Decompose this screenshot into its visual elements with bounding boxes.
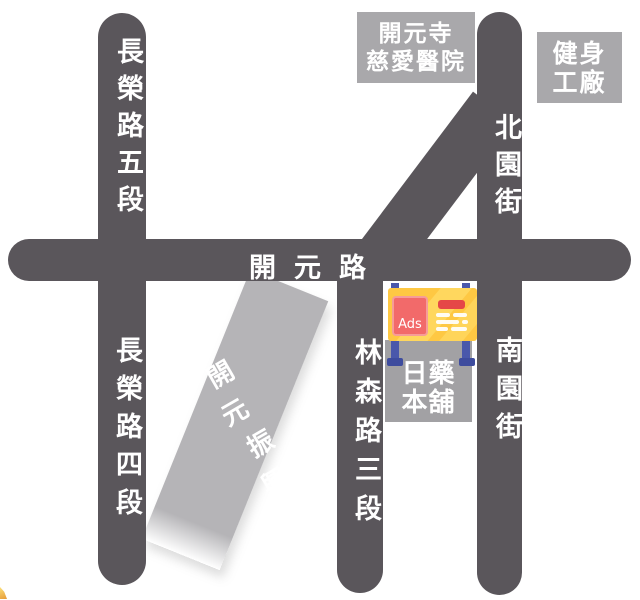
road-label-kaiyuan: 開元路 [249,246,384,285]
billboard-sign: Ads [388,288,477,341]
hospital-label-box: 開元寺 慈愛醫院 [357,12,475,83]
schematic-street-map: 開元 振興 公園 長榮路五段 長榮路四段 開元路 林森路三段 北園街 南園街 開… [0,0,640,600]
road-label-changrong-sec4: 長榮路四段 [107,336,146,526]
gym-name-line1: 健身 [552,39,606,68]
ads-badge: Ads [392,296,428,336]
billboard-text-line-icon [436,320,459,324]
ads-badge-label: Ads [398,317,422,332]
road-label-beiyuan-street: 北園街 [486,113,525,224]
billboard-text-line-icon [451,327,467,331]
billboard-text-line-icon [453,313,467,317]
road-label-changrong-sec5: 長榮路五段 [108,37,147,222]
road-label-linsen-sec3: 林森路三段 [346,338,385,533]
billboard-foot-right [459,358,475,366]
corner-flame-mark [0,587,7,599]
road-label-nanyuan-street: 南園街 [487,336,526,450]
billboard-text-line-icon [436,313,450,317]
hospital-name-line1: 開元寺 [379,20,454,48]
hospital-name-line2: 慈愛醫院 [366,48,466,76]
billboard-text-line-icon [462,320,468,324]
road-yuan-street [477,12,522,595]
billboard-text-line-icon [436,327,448,331]
gym-label-box: 健身 工廠 [537,32,622,103]
gym-name-line2: 工廠 [552,68,606,97]
drugstore-name-line2: 本舖 [401,389,455,418]
billboard-foot-left [387,358,403,366]
billboard-headline-bar [438,300,465,309]
drugstore-name-line1: 日藥 [401,360,455,389]
